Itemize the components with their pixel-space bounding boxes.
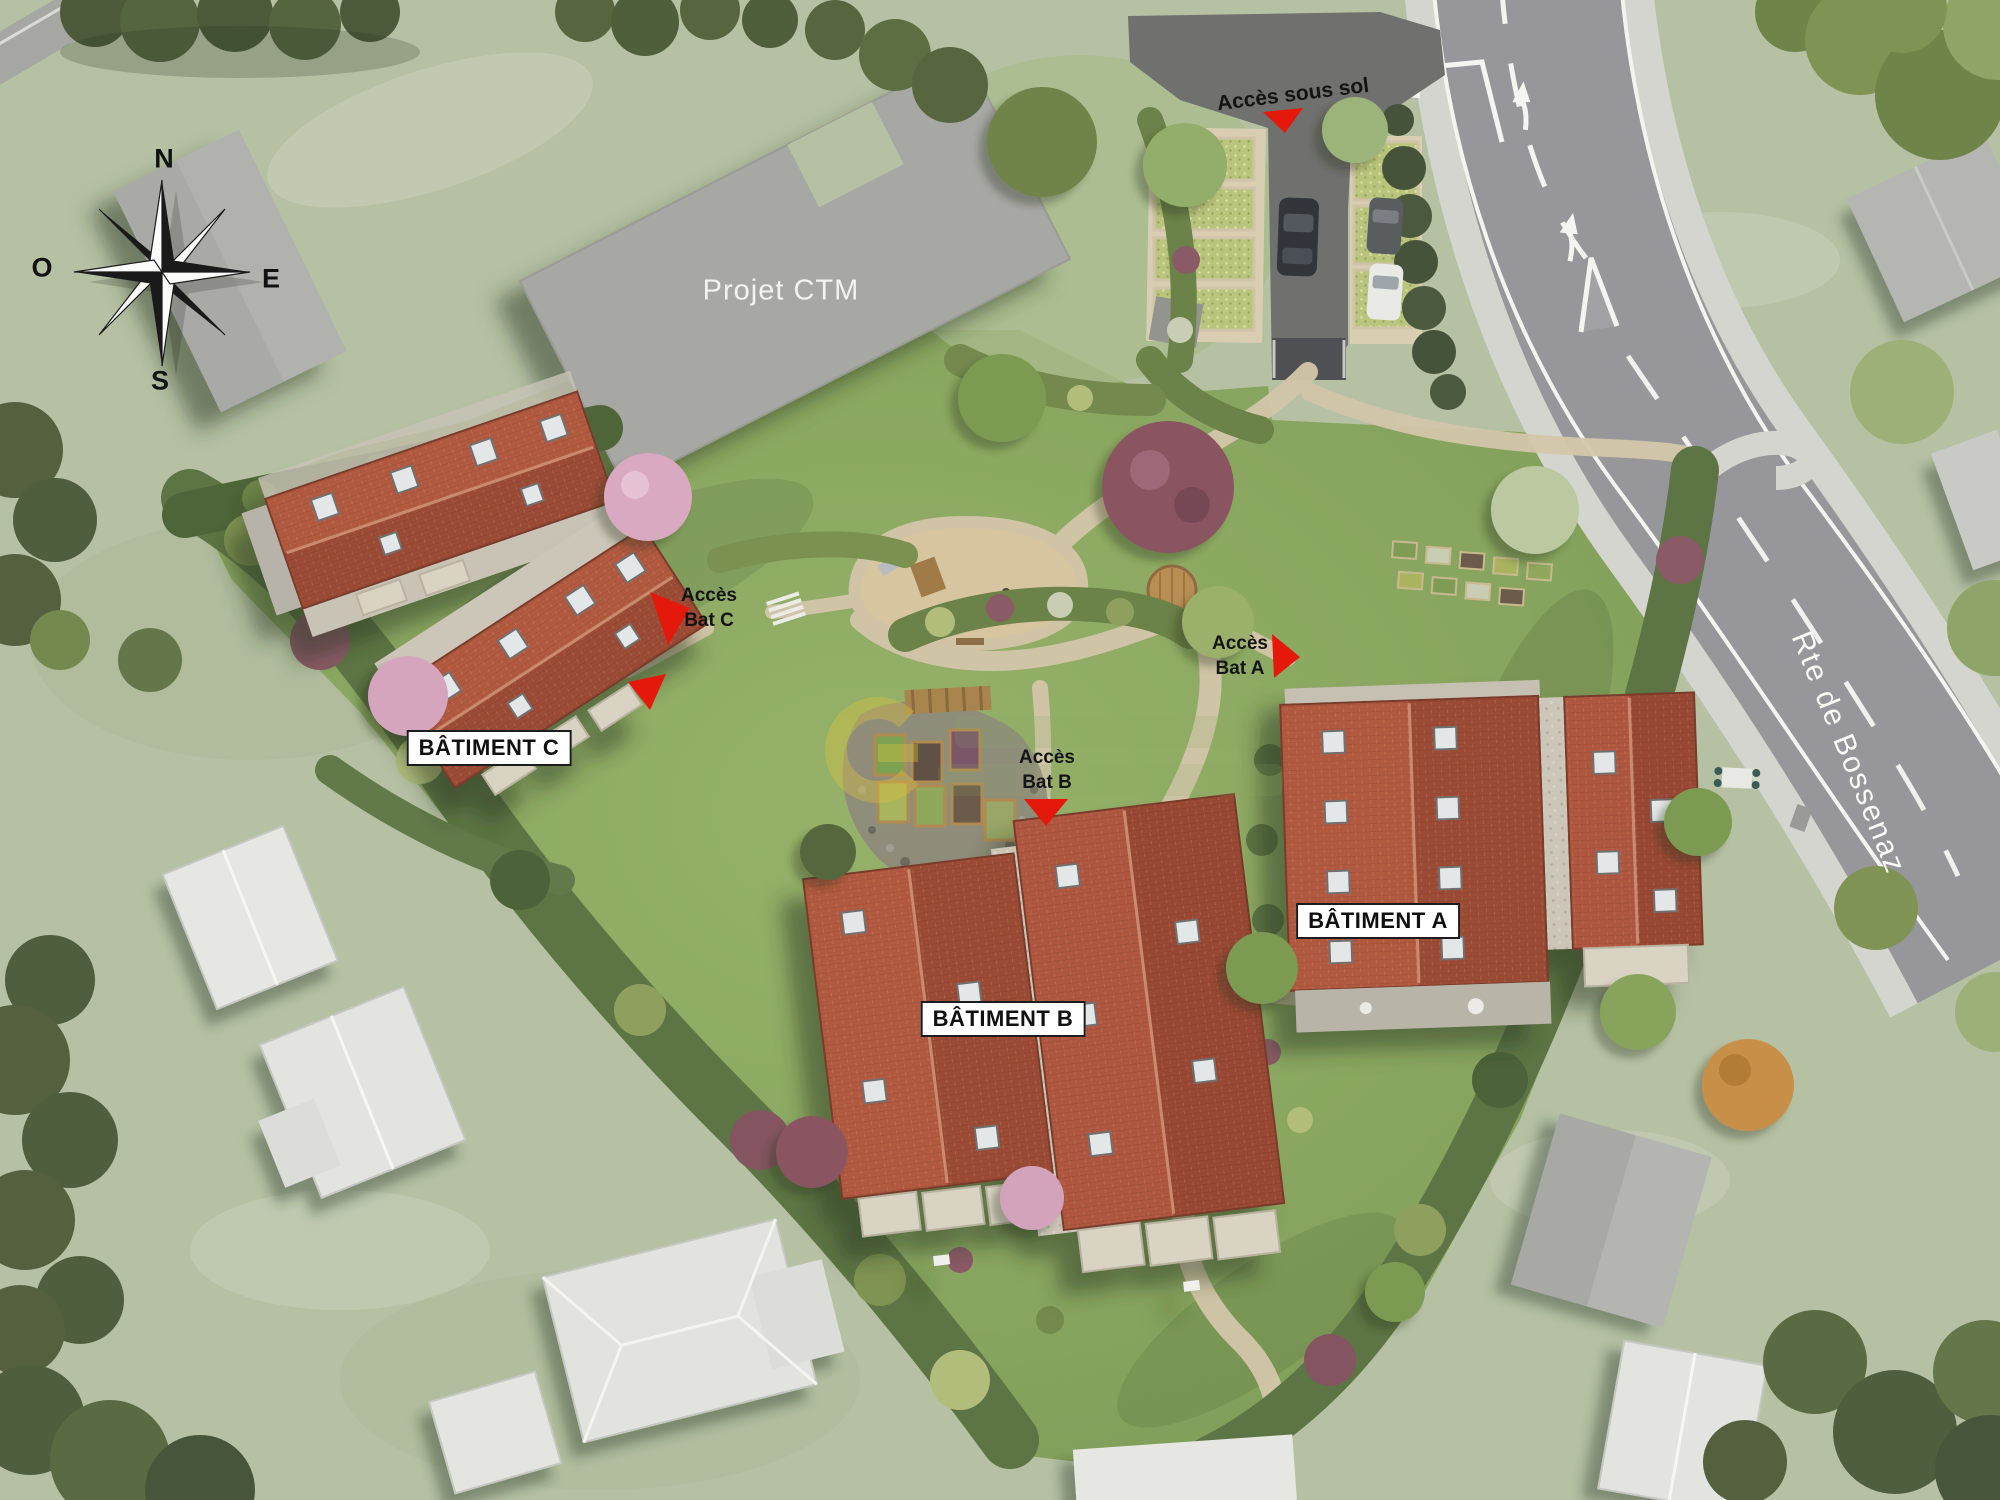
- acces-bat-a-label: Accès Bat A: [1212, 631, 1268, 681]
- compass-west-label: O: [31, 253, 52, 284]
- acces-bat-b-line2: Bat B: [1019, 770, 1075, 795]
- acces-bat-b-label: Accès Bat B: [1019, 745, 1075, 795]
- acces-bat-b-line1: Accès: [1019, 745, 1075, 770]
- compass-east-label: E: [262, 264, 280, 295]
- compass-north-label: N: [154, 144, 174, 175]
- acces-bat-c-line1: Accès: [681, 583, 737, 608]
- site-plan: N O E S Projet CTM Accès sous sol Accès …: [0, 0, 2000, 1500]
- acces-bat-c-line2: Bat C: [681, 608, 737, 633]
- car-gray: [1366, 197, 1404, 255]
- projet-ctm-label: Projet CTM: [703, 275, 860, 308]
- pergola: [904, 686, 991, 714]
- batiment-a-label: BÂTIMENT A: [1296, 903, 1460, 939]
- acces-bat-a-line1: Accès: [1212, 631, 1268, 656]
- batiment-c-label: BÂTIMENT C: [407, 730, 572, 766]
- car-white: [1366, 263, 1404, 321]
- bench: [956, 638, 984, 645]
- acces-bat-c-label: Accès Bat C: [681, 583, 737, 633]
- terrace-band: [1295, 982, 1551, 1033]
- compass-south-label: S: [151, 366, 169, 397]
- car-dark: [1277, 197, 1320, 276]
- site-plan-art: [0, 0, 2000, 1500]
- batiment-b-label: BÂTIMENT B: [921, 1001, 1086, 1037]
- acces-bat-a-line2: Bat A: [1212, 656, 1268, 681]
